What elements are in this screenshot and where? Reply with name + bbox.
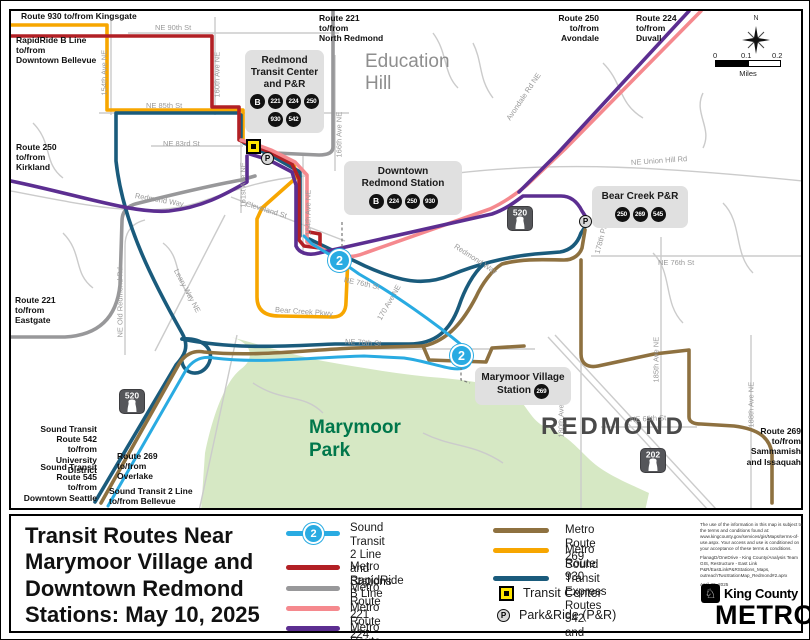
king-county-metro-logo: ♘ King County METRO	[701, 584, 803, 631]
map-label-route-221-eastgate: Route 221 to/from Eastgate	[15, 295, 56, 326]
route-badge-542: 542	[286, 112, 301, 127]
map-label-route-221-north-redmond: Route 221 to/from North Redmond	[319, 13, 383, 44]
street-label: 154th Ave NE	[100, 50, 109, 96]
legend-line-swatch	[493, 576, 549, 581]
svg-text:520: 520	[513, 208, 527, 218]
legend-fine-print: The use of the information in this map i…	[700, 522, 804, 591]
scale-tick: 0.2	[772, 51, 782, 60]
compass-north-label: N	[749, 15, 763, 22]
legend-item-label: Metro Route 250	[350, 622, 381, 640]
legend-panel: Transit Routes Near Marymoor Village and…	[9, 514, 803, 633]
line2-station-badge: 2	[450, 344, 473, 367]
route-badge-930: 930	[268, 112, 283, 127]
route-badge-B: B	[369, 194, 384, 209]
transit-center-icon	[246, 139, 261, 154]
transit-center-icon	[499, 586, 514, 601]
scale-bar: 00.10.2 Miles	[715, 51, 785, 78]
scale-rect	[715, 60, 781, 67]
station-title-line: Transit Center	[249, 67, 320, 79]
transit-map-page: N 00.10.2 Miles Education Hill Marymoor …	[0, 0, 810, 640]
legend-line-swatch	[286, 606, 340, 611]
park-ride-icon: P	[261, 152, 274, 165]
street-label: NE Old Redmond Rd	[116, 267, 125, 337]
route-badge-B: B	[250, 94, 265, 109]
legend-line-swatch	[286, 586, 340, 591]
legend-symbol-transit-center: Transit Center	[499, 586, 602, 601]
map-label-st-2line-bellevue: Sound Transit 2 Line to/from Bellevue	[109, 486, 193, 506]
highway-shield-520: 520	[507, 206, 533, 231]
line2-station-badge: 2	[328, 249, 351, 272]
route-badge-224: 224	[387, 194, 402, 209]
svg-text:202: 202	[646, 450, 660, 460]
street-label: 164th Ave NE	[304, 190, 313, 236]
map-label-st-545-seattle: Sound Transit Route 545 to/from Downtown…	[19, 462, 97, 503]
legend-symbol-label: Transit Center	[523, 586, 602, 601]
station-title-line: Bear Creek P&R	[596, 191, 684, 203]
map-label-route-250-kirkland: Route 250 to/from Kirkland	[16, 142, 57, 173]
park-ride-icon: P	[497, 609, 510, 622]
scale-tick: 0.1	[741, 51, 751, 60]
legend-line-swatch	[286, 565, 340, 570]
credit-text: FlanagD/OneDrive - King County/Analysis …	[700, 555, 804, 579]
svg-text:520: 520	[125, 391, 139, 401]
station-title-line: and P&R	[249, 79, 320, 91]
legend-symbol-label: Park&Ride (P&R)	[519, 608, 616, 623]
legend-line-swatch	[493, 528, 549, 533]
area-label-education-hill: Education Hill	[365, 51, 450, 95]
map-label-route-269-sammamish: Route 269 to/from Sammamish and Issaquah	[729, 426, 801, 467]
map-label-route-250-avondale: Route 250 to/from Avondale	[541, 13, 599, 44]
street-label: NE 83rd St	[163, 139, 200, 148]
street-label: 166th Ave NE	[335, 112, 344, 158]
street-label: NE 76th St	[658, 258, 694, 267]
route-badge-930: 930	[423, 194, 438, 209]
logo-county-text: King County	[724, 586, 798, 601]
legend-line-swatch	[286, 626, 340, 631]
street-label: 188th Ave NE	[747, 382, 756, 428]
station-title-line: Station269	[479, 384, 567, 399]
disclaimer-text: The use of the information in this map i…	[700, 522, 804, 552]
route-badge-250: 250	[405, 194, 420, 209]
scale-tick-labels: 00.10.2	[715, 51, 785, 60]
scale-tick: 0	[713, 51, 717, 60]
station-title-line: Redmond Station	[348, 178, 458, 190]
map-title: Transit Routes Near Marymoor Village and…	[25, 523, 297, 629]
street-label: 185th Ave NE	[652, 337, 661, 383]
legend-line-swatch	[493, 548, 549, 553]
street-label: NE 65th St	[630, 413, 667, 424]
legend-symbol-park-ride: PPark&Ride (P&R)	[497, 608, 616, 623]
station-marymoor-village-station: Marymoor VillageStation269	[475, 367, 571, 405]
street-label: NE 85th St	[146, 101, 182, 110]
park-ride-icon: P	[579, 215, 592, 228]
map-label-rapidride-b-bellevue: RapidRide B Line to/from Downtown Bellev…	[16, 35, 96, 66]
route-badge-545: 545	[651, 207, 666, 222]
legend-line2-badge: 2	[303, 523, 324, 544]
map-world: N 00.10.2 Miles Education Hill Marymoor …	[9, 9, 803, 510]
highway-shield-202: 202	[640, 448, 666, 473]
scale-unit: Miles	[715, 69, 781, 78]
route-badge-250: 250	[615, 207, 630, 222]
station-badges: B224250930	[348, 194, 458, 209]
street-label: 160th Ave NE	[213, 52, 222, 98]
street-label: NE 90th St	[155, 23, 191, 32]
route-badge-224: 224	[286, 94, 301, 109]
highway-shield-520: 520	[119, 389, 145, 414]
station-title-line: Redmond	[249, 55, 320, 67]
map-label-route-269-overlake: Route 269 to/from Overlake	[117, 451, 158, 482]
area-label-marymoor-park: Marymoor Park	[309, 417, 401, 463]
station-redmond-transit-center: RedmondTransit Centerand P&RB22122425093…	[245, 50, 324, 133]
map-area: N 00.10.2 Miles Education Hill Marymoor …	[9, 9, 803, 510]
station-bear-creek-pr: Bear Creek P&R250269545	[592, 186, 688, 228]
station-badges: 250269545	[596, 207, 684, 222]
logo-metro-text: METRO	[715, 600, 803, 631]
map-label-route-930-kingsgate: Route 930 to/from Kingsgate	[21, 11, 137, 21]
map-label-route-224-duvall: Route 224 to/from Duvall	[636, 13, 677, 44]
station-badges: B221224250930542	[249, 94, 320, 127]
route-badge-221: 221	[268, 94, 283, 109]
route-badge-269: 269	[633, 207, 648, 222]
street-label: NE 70th St	[345, 337, 382, 348]
station-title-line: Downtown	[348, 166, 458, 178]
route-badge-269: 269	[534, 384, 549, 399]
station-downtown-redmond-station: DowntownRedmond StationB224250930	[344, 161, 462, 215]
station-title-line: Marymoor Village	[479, 372, 567, 384]
route-badge-250: 250	[304, 94, 319, 109]
